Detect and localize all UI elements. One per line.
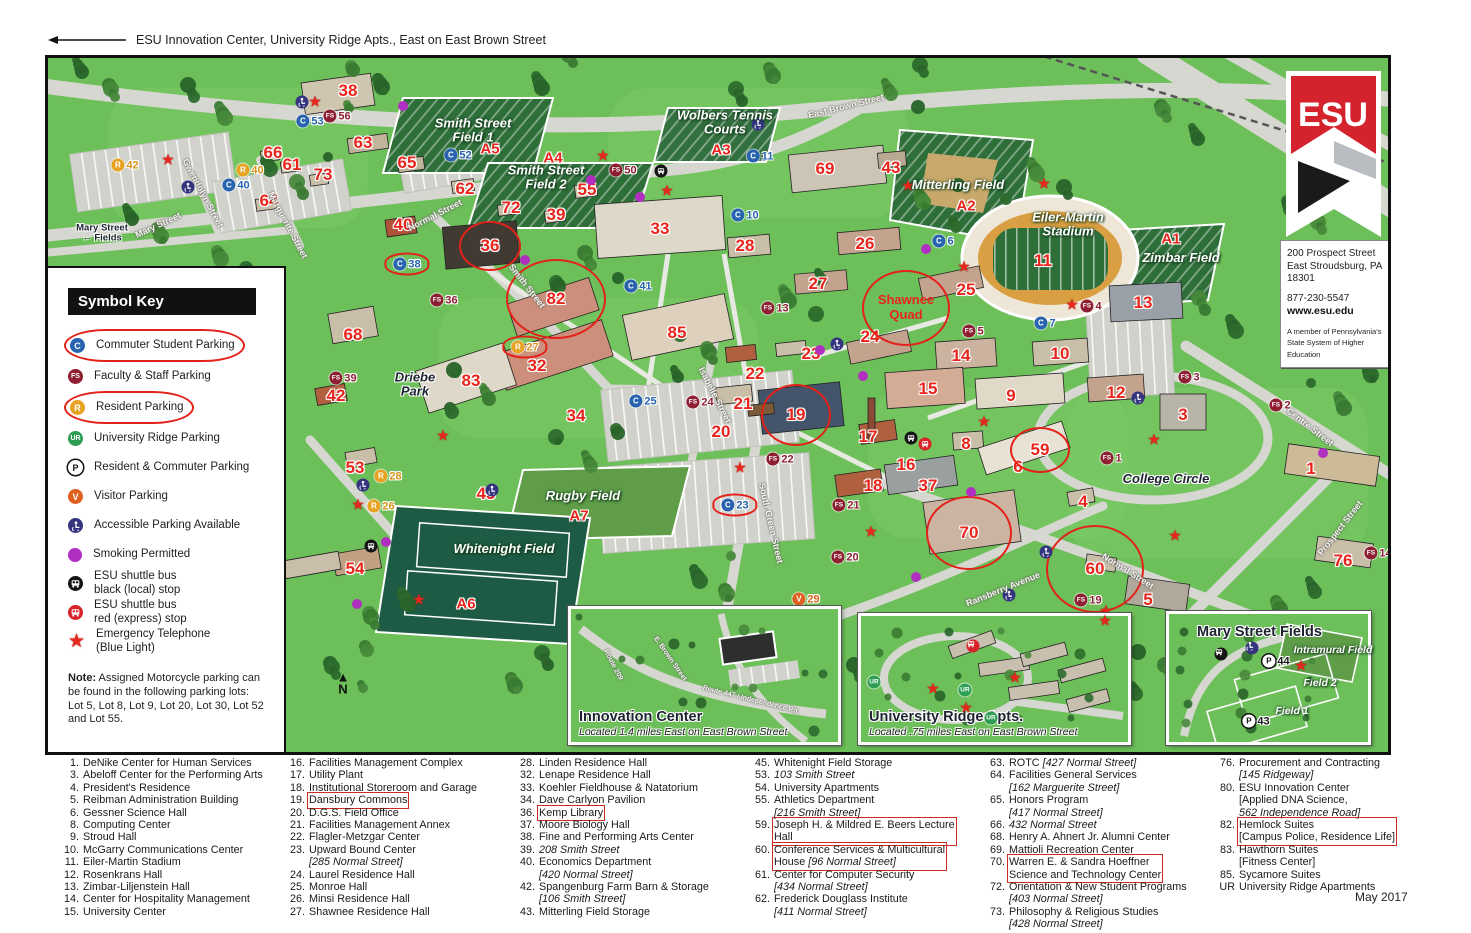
- directory-entry-text: Hawthorn Suites[Fitness Center]: [1239, 844, 1437, 869]
- directory-entry-59: 59.Joseph H. & Mildred E. Beers LectureH…: [746, 819, 972, 844]
- building-number-20: 20: [712, 422, 731, 442]
- directory-entry-text: Zimbar-Liljenstein Hall: [83, 881, 281, 893]
- directory-entry-text: DeNike Center for Human Services: [83, 757, 281, 769]
- shuttle-bus-black-icon: [1215, 648, 1228, 661]
- building-number-83: 83: [462, 371, 481, 391]
- directory-entry-43: 43.Mitterling Field Storage: [511, 906, 737, 918]
- area-label-college-circle: College Circle: [1123, 472, 1210, 486]
- directory-entry-line: 103 Smith Street: [774, 769, 972, 781]
- directory-column-1: 1.DeNike Center for Human Services3.Abel…: [55, 757, 281, 918]
- directory-entry-line: [Fitness Center]: [1239, 856, 1437, 868]
- directory-entry-number: UR: [1211, 881, 1235, 893]
- directory-entry-text: Conference Services & MulticulturalHouse…: [774, 844, 945, 869]
- emergency-telephone-icon: ★: [596, 149, 609, 164]
- directory-entry-line: Facilities General Services: [1009, 769, 1207, 781]
- directory-entry-number: 85.: [1211, 869, 1235, 881]
- parking-FS-icon: FS: [1100, 452, 1113, 465]
- field-code-A1: A1: [1161, 231, 1180, 248]
- directory-entry-number: 68.: [981, 831, 1005, 843]
- top-direction-note: ESU Innovation Center, University Ridge …: [48, 33, 546, 47]
- parking-R-icon: R: [367, 500, 380, 513]
- parking-C-icon: C: [222, 179, 235, 192]
- street-label-normal-street: Normal Street: [406, 197, 463, 233]
- field-label-zimbar-field: Zimbar Field: [1142, 251, 1219, 265]
- map-annotation-circle-59: 59: [1010, 427, 1070, 473]
- parking-P-icon: P: [1242, 715, 1255, 728]
- directory-entry-text: Rosenkrans Hall: [83, 869, 281, 881]
- key-row-accessible-parking-available: Accessible Parking Available: [64, 511, 248, 540]
- parking-FS-icon: FS: [1080, 300, 1093, 313]
- motorcycle-parking-note: Note: Assigned Motorcycle parking can be…: [68, 672, 266, 727]
- directory-entry-text: Mitterling Field Storage: [539, 906, 737, 918]
- directory-entry-19: 19.Dansbury Commons: [281, 794, 507, 806]
- parking-badge-R-27: R27: [502, 336, 547, 359]
- parking-UR-icon: UR: [868, 676, 881, 689]
- directory-entry-line: [285 Normal Street]: [309, 856, 507, 868]
- key-row-university-ridge-parking: URUniversity Ridge Parking: [64, 424, 228, 453]
- directory-entry-55: 55.Athletics Department[216 Smith Street…: [746, 794, 972, 819]
- parking-FS-icon: FS: [323, 110, 336, 123]
- directory-entry-45: 45.Whitenight Field Storage: [746, 757, 972, 769]
- building-number-59: 59: [1031, 440, 1050, 460]
- directory-entry-54: 54.University Apartments: [746, 782, 972, 794]
- parking-badge-FS-22: FS22: [766, 453, 793, 466]
- parking-C-icon: C: [721, 499, 734, 512]
- directory-entry-number: 26.: [281, 893, 305, 905]
- parking-badge-number: 38: [408, 258, 420, 270]
- parking-C-icon: C: [624, 280, 637, 293]
- parking-FS-icon: FS: [831, 551, 844, 564]
- accessible-parking-icon: [296, 96, 309, 109]
- parking-badge-number: 56: [338, 110, 350, 122]
- street-label-mary-street: Mary Street: [134, 210, 183, 240]
- directory-entry-21: 21.Facilities Management Annex: [281, 819, 507, 831]
- parking-badge-C-41: C41: [624, 280, 651, 293]
- building-number-9: 9: [1006, 386, 1015, 406]
- directory-entry-line: Facilities Management Complex: [309, 757, 507, 769]
- parking-badge-FS-50: FS50: [609, 164, 636, 177]
- building-number-66: 66: [264, 143, 283, 163]
- inset-university-ridge: University Ridge Apts.Located .75 miles …: [858, 613, 1131, 745]
- smoking-permitted-icon: [520, 255, 530, 265]
- key-row-resident-commuter-parking: PResident & Commuter Parking: [64, 453, 257, 482]
- directory-entry-line: Laurel Residence Hall: [309, 869, 507, 881]
- shawnee-quad-annotation: Shawnee Quad: [862, 270, 950, 346]
- directory-entry-number: 14.: [55, 893, 79, 905]
- parking-badge-R-42: R42: [111, 159, 138, 172]
- parking-badge-number: 39: [344, 372, 356, 384]
- building-number-19: 19: [787, 405, 806, 425]
- address-line: 200 Prospect Street: [1287, 248, 1385, 261]
- building-number-25: 25: [957, 280, 976, 300]
- directory-entry-number: 45.: [746, 757, 770, 769]
- parking-FS-icon: FS: [1178, 371, 1191, 384]
- parking-badge-number: 1: [1115, 452, 1121, 464]
- directory-entry-82: 82.Hemlock Suites[Campus Police, Residen…: [1211, 819, 1437, 844]
- accessible-parking-icon: [357, 479, 370, 492]
- building-number-54: 54: [346, 559, 365, 579]
- directory-entry-number: 72.: [981, 881, 1005, 906]
- parking-badge-FS-36: FS36: [430, 294, 457, 307]
- parking-badge-FS-19: FS19: [1074, 594, 1101, 607]
- parking-R-icon: R: [70, 400, 85, 415]
- directory-entry-70: 70.Warren E. & Sandra HoeffnerScience an…: [981, 856, 1207, 881]
- building-number-28: 28: [736, 236, 755, 256]
- parking-V-icon: V: [68, 489, 83, 504]
- directory-entry-text: Spangenburg Farm Barn & Storage[106 Smit…: [539, 881, 737, 906]
- directory-entry-line: Institutional Storeroom and Garage: [309, 782, 507, 794]
- emergency-telephone-icon: ★: [351, 498, 364, 513]
- directory-entry-number: 13.: [55, 881, 79, 893]
- parking-badge-number: 5: [977, 325, 983, 337]
- directory-entry-number: 25.: [281, 881, 305, 893]
- parking-badge-number: 27: [526, 341, 538, 353]
- directory-entry-line: Reibman Administration Building: [83, 794, 281, 806]
- directory-entry-line: Moore Biology Hall: [539, 819, 737, 831]
- directory-entry-line: D.G.S. Field Office: [309, 807, 507, 819]
- field-label-rugby-field: Rugby Field: [546, 489, 620, 503]
- directory-entry-line: [434 Normal Street]: [774, 881, 972, 893]
- directory-entry-number: 32.: [511, 769, 535, 781]
- directory-entry-number: 80.: [1211, 782, 1235, 819]
- directory-entry-line: [162 Marguerite Street]: [1009, 782, 1207, 794]
- directory-entry-line: Abeloff Center for the Performing Arts: [83, 769, 281, 781]
- directory-entry-4: 4.President's Residence: [55, 782, 281, 794]
- inset-subtitle-innovation: Located 1.4 miles East on East Brown Str…: [579, 726, 787, 738]
- directory-entry-line: Linden Residence Hall: [539, 757, 737, 769]
- building-number-72: 72: [502, 198, 521, 218]
- directory-entry-text: Frederick Douglass Institute[411 Normal …: [774, 893, 972, 918]
- shuttle-bus-black-icon: [365, 540, 378, 553]
- building-number-85: 85: [668, 323, 687, 343]
- directory-entry-line: Gessner Science Hall: [83, 807, 281, 819]
- directory-entry-text: Eiler-Martin Stadium: [83, 856, 281, 868]
- field-label-eiler-martin-stadium: Eiler-Martin Stadium: [1032, 211, 1104, 240]
- directory-entry-25: 25.Monroe Hall: [281, 881, 507, 893]
- directory-entry-text: Reibman Administration Building: [83, 794, 281, 806]
- key-row-commuter-student-parking: CCommuter Student Parking: [64, 329, 245, 362]
- emergency-telephone-icon: ★: [436, 429, 449, 444]
- directory-entry-23: 23.Upward Bound Center[285 Normal Street…: [281, 844, 507, 869]
- area-label-driebe-park: Driebe Park: [395, 371, 435, 400]
- key-row-esu-shuttle-bus: ESU shuttle bus black (local) stop: [64, 569, 188, 598]
- directory-entry-line: Mattioli Recreation Center: [1009, 844, 1207, 856]
- directory-entry-number: 19.: [281, 794, 305, 806]
- directory-entry-line: ESU Innovation Center: [1239, 782, 1437, 794]
- directory-entry-line: 562 Independence Road]: [1239, 807, 1437, 819]
- directory-entry-number: 39.: [511, 844, 535, 856]
- key-row-visitor-parking: VVisitor Parking: [64, 482, 176, 511]
- parking-badge-number: 43: [1257, 715, 1269, 727]
- directory-entry-62: 62.Frederick Douglass Institute[411 Norm…: [746, 893, 972, 918]
- directory-entry-36: 36.Kemp Library: [511, 807, 737, 819]
- key-row-label: Visitor Parking: [94, 490, 168, 503]
- directory-entry-text: Facilities General Services[162 Margueri…: [1009, 769, 1207, 794]
- parking-C-icon: C: [747, 150, 760, 163]
- inset-field-label-field-1: Field 1: [1275, 705, 1308, 717]
- directory-entry-line: Warren E. & Sandra Hoeffner: [1009, 856, 1161, 868]
- directory-entry-line: Koehler Fieldhouse & Natatorium: [539, 782, 737, 794]
- key-row-label: University Ridge Parking: [94, 432, 220, 445]
- parking-C-icon: C: [731, 209, 744, 222]
- parking-C-icon: C: [1034, 317, 1047, 330]
- directory-entry-line: [Applied DNA Science,: [1239, 794, 1437, 806]
- field-label-mitterling-field: Mitterling Field: [912, 178, 1004, 192]
- directory-entry-number: 8.: [55, 819, 79, 831]
- directory-entry-text: Stroud Hall: [83, 831, 281, 843]
- parking-badge-number: 14: [1379, 547, 1391, 559]
- directory-entry-number: 61.: [746, 869, 770, 894]
- directory-entry-line: Upward Bound Center: [309, 844, 507, 856]
- directory-entry-number: 55.: [746, 794, 770, 819]
- directory-entry-text: Utility Plant: [309, 769, 507, 781]
- parking-badge-number: 40: [251, 164, 263, 176]
- note-text: Assigned Motorcycle parking can be found…: [68, 672, 264, 725]
- directory-entry-number: 20.: [281, 807, 305, 819]
- emergency-telephone-icon: ★: [1065, 298, 1078, 313]
- directory-entry-number: 22.: [281, 831, 305, 843]
- directory-entry-text: Philosophy & Religious Studies[428 Norma…: [1009, 906, 1207, 931]
- parking-badge-FS-3: FS3: [1178, 371, 1199, 384]
- directory-entry-85: 85.Sycamore Suites: [1211, 869, 1437, 881]
- smoking-permitted-icon: [815, 345, 825, 355]
- directory-entry-number: 23.: [281, 844, 305, 869]
- directory-entry-line: Computing Center: [83, 819, 281, 831]
- directory-entry-11: 11.Eiler-Martin Stadium: [55, 856, 281, 868]
- directory-entry-number: 17.: [281, 769, 305, 781]
- directory-entry-number: 27.: [281, 906, 305, 918]
- directory-entry-24: 24.Laurel Residence Hall: [281, 869, 507, 881]
- parking-badge-number: 11: [762, 150, 774, 162]
- directory-entry-text: Koehler Fieldhouse & Natatorium: [539, 782, 737, 794]
- directory-entry-line: Hall: [774, 831, 955, 843]
- directory-column-2: 16.Facilities Management Complex17.Utili…: [281, 757, 507, 918]
- shuttle-bus-red-icon: [919, 438, 932, 451]
- directory-entry-line: Kemp Library: [539, 807, 603, 819]
- inset-field-label-intramural-field: Intramural Field: [1294, 644, 1373, 656]
- directory-entry-text: Monroe Hall: [309, 881, 507, 893]
- smoking-permitted-icon: [1318, 448, 1328, 458]
- map-date: May 2017: [1355, 890, 1408, 904]
- parking-FS-icon: FS: [962, 325, 975, 338]
- directory-entry-line: Hawthorn Suites: [1239, 844, 1437, 856]
- directory-entry-number: 37.: [511, 819, 535, 831]
- building-number-61: 61: [283, 155, 302, 175]
- directory-entry-line: ROTC [427 Normal Street]: [1009, 757, 1207, 769]
- building-number-68: 68: [344, 325, 363, 345]
- parking-badge-number: 3: [1193, 371, 1199, 383]
- smoking-permitted-icon: [921, 244, 931, 254]
- accessible-parking-icon: [1246, 642, 1259, 655]
- directory-entry-12: 12.Rosenkrans Hall: [55, 869, 281, 881]
- directory-entry-line: Joseph H. & Mildred E. Beers Lecture: [774, 819, 955, 831]
- parking-V-icon: V: [792, 593, 805, 606]
- directory-entry-number: 1.: [55, 757, 79, 769]
- key-row-label: Smoking Permitted: [93, 548, 190, 561]
- parking-badge-C-6: C6: [932, 235, 953, 248]
- accessible-parking-icon: [1132, 392, 1145, 405]
- inset-title-innovation: Innovation Center: [579, 709, 702, 725]
- directory-entry-33: 33.Koehler Fieldhouse & Natatorium: [511, 782, 737, 794]
- building-number-33: 33: [651, 219, 670, 239]
- building-number-32: 32: [528, 356, 547, 376]
- parking-badge-number: 23: [736, 499, 748, 511]
- directory-entry-line: Rosenkrans Hall: [83, 869, 281, 881]
- emergency-telephone-icon: ★: [1147, 433, 1160, 448]
- directory-entry-line: House [96 Normal Street]: [774, 856, 945, 868]
- directory-entry-number: 70.: [981, 856, 1005, 881]
- parking-R-icon: R: [236, 164, 249, 177]
- key-row-label: ESU shuttle bus black (local) stop: [94, 570, 180, 596]
- parking-badge-FS-39: FS39: [329, 372, 356, 385]
- directory-entry-text: Center for Hospitality Management: [83, 893, 281, 905]
- directory-entry-66: 66.432 Normal Street: [981, 819, 1207, 831]
- directory-entry-text: Linden Residence Hall: [539, 757, 737, 769]
- directory-entry-text: Orientation & New Student Programs[403 N…: [1009, 881, 1207, 906]
- building-number-16: 16: [897, 455, 916, 475]
- building-number-38: 38: [339, 81, 358, 101]
- smoking-permitted-icon: [635, 192, 645, 202]
- parking-UR-icon: UR: [68, 431, 83, 446]
- building-number-73: 73: [314, 165, 333, 185]
- street-label-ransberry-avenue: Ransberry Avenue: [965, 570, 1042, 609]
- building-number-76: 76: [1334, 551, 1353, 571]
- directory-entry-37: 37.Moore Biology Hall: [511, 819, 737, 831]
- field-code-A3: A3: [711, 142, 730, 159]
- directory-entry-number: 38.: [511, 831, 535, 843]
- parking-badge-number: 50: [624, 164, 636, 176]
- building-number-34: 34: [567, 406, 586, 426]
- building-number-17: 17: [859, 427, 878, 447]
- directory-entry-5: 5.Reibman Administration Building: [55, 794, 281, 806]
- directory-entry-text: Institutional Storeroom and Garage: [309, 782, 507, 794]
- key-row-label: Emergency Telephone (Blue Light): [96, 628, 210, 654]
- key-row-label: Resident Parking: [96, 401, 184, 414]
- directory-entry-text: Laurel Residence Hall: [309, 869, 507, 881]
- parking-badge-FS-56: FS56: [323, 110, 350, 123]
- directory-entry-line: [411 Normal Street]: [774, 906, 972, 918]
- parking-badge-number: 25: [644, 395, 656, 407]
- parking-FS-icon: FS: [1269, 399, 1282, 412]
- building-number-10: 10: [1051, 344, 1070, 364]
- field-label-smith-street-field-2: Smith Street Field 2: [508, 164, 585, 193]
- parking-UR-icon: UR: [959, 684, 972, 697]
- map-annotation-circle-19: 19: [761, 384, 831, 446]
- directory-column-3: 28.Linden Residence Hall32.Lenape Reside…: [511, 757, 737, 918]
- directory-entry-number: 18.: [281, 782, 305, 794]
- emergency-telephone-icon: ★: [977, 415, 990, 430]
- parking-UR-icon: UR: [985, 712, 998, 725]
- parking-badge-number: 52: [459, 149, 471, 161]
- directory-entry-line: Economics Department: [539, 856, 737, 868]
- directory-entry-text: Sycamore Suites: [1239, 869, 1437, 881]
- directory-entry-line: Frederick Douglass Institute: [774, 893, 972, 905]
- directory-entry-number: 4.: [55, 782, 79, 794]
- directory-entry-number: 40.: [511, 856, 535, 881]
- directory-entry-text: 208 Smith Street: [539, 844, 737, 856]
- parking-FS-icon: FS: [1364, 547, 1377, 560]
- directory-entry-32: 32.Lenape Residence Hall: [511, 769, 737, 781]
- directory-entry-60: 60.Conference Services & MulticulturalHo…: [746, 844, 972, 869]
- inset-mary-street-fields: Mary Street FieldsIntramural FieldField …: [1166, 611, 1371, 745]
- directory-entry-number: 64.: [981, 769, 1005, 794]
- left-arrow-icon: [48, 34, 128, 46]
- emergency-telephone-icon: ★: [959, 701, 972, 716]
- directory-entry-line: DeNike Center for Human Services: [83, 757, 281, 769]
- key-row-faculty-staff-parking: FSFaculty & Staff Parking: [64, 362, 219, 391]
- directory-entry-text: Shawnee Residence Hall: [309, 906, 507, 918]
- esu-logo-icon: ESU: [1286, 71, 1381, 243]
- directory-entry-38: 38.Fine and Performing Arts Center: [511, 831, 737, 843]
- parking-C-icon: C: [393, 258, 406, 271]
- directory-entry-number: 34.: [511, 794, 535, 806]
- smoking-permitted-icon: [381, 537, 391, 547]
- directory-entry-text: Athletics Department[216 Smith Street]: [774, 794, 972, 819]
- street-label-south-green-street: South Green Street: [757, 482, 785, 564]
- parking-C-icon: C: [70, 338, 85, 353]
- directory-entry-34: 34.Dave Carlyon Pavilion: [511, 794, 737, 806]
- directory-entry-61: 61.Center for Computer Security[434 Norm…: [746, 869, 972, 894]
- building-number-22: 22: [746, 364, 765, 384]
- directory-entry-number: 53.: [746, 769, 770, 781]
- building-number-82: 82: [547, 289, 566, 309]
- key-row-esu-shuttle-bus: ESU shuttle bus red (express) stop: [64, 598, 195, 627]
- parking-badge-V-29: V29: [792, 593, 819, 606]
- directory-entry-line: Procurement and Contracting: [1239, 757, 1437, 769]
- directory-entry-line: Stroud Hall: [83, 831, 281, 843]
- directory-entry-number: 10.: [55, 844, 79, 856]
- directory-entry-line: 208 Smith Street: [539, 844, 737, 856]
- directory-entry-number: 42.: [511, 881, 535, 906]
- directory-entry-9: 9.Stroud Hall: [55, 831, 281, 843]
- parking-badge-number: 7: [1049, 317, 1055, 329]
- directory-entry-line: Dansbury Commons: [309, 794, 407, 806]
- directory-entry-number: 76.: [1211, 757, 1235, 782]
- emergency-telephone-icon: ★: [1168, 529, 1181, 544]
- directory-entry-text: 103 Smith Street: [774, 769, 972, 781]
- parking-badge-number: 10: [746, 209, 758, 221]
- street-label-marguerite-street: Marguerite Street: [266, 190, 310, 260]
- parking-R-icon: R: [511, 341, 524, 354]
- directory-entry-text: Dave Carlyon Pavilion: [539, 794, 737, 806]
- directory-entry-line: [417 Normal Street]: [1009, 807, 1207, 819]
- directory-entry-text: 432 Normal Street: [1009, 819, 1207, 831]
- esu-logo: ESU: [1286, 71, 1381, 243]
- directory-entry-text: ROTC [427 Normal Street]: [1009, 757, 1207, 769]
- directory-entry-text: ESU Innovation Center[Applied DNA Scienc…: [1239, 782, 1437, 819]
- building-number-12: 12: [1107, 383, 1126, 403]
- building-number-36: 36: [481, 236, 500, 256]
- directory-entry-number: 6.: [55, 807, 79, 819]
- emergency-telephone-icon: ★: [864, 525, 877, 540]
- parking-FS-icon: FS: [832, 499, 845, 512]
- parking-FS-icon: FS: [329, 372, 342, 385]
- parking-C-icon: C: [296, 115, 309, 128]
- parking-badge-R-28: R28: [374, 470, 401, 483]
- directory-entry-text: Henry A. Ahnert Jr. Alumni Center: [1009, 831, 1207, 843]
- parking-badge-C-40: C40: [222, 179, 249, 192]
- directory-entry-17: 17.Utility Plant: [281, 769, 507, 781]
- directory-entry-20: 20.D.G.S. Field Office: [281, 807, 507, 819]
- parking-badge-C-7: C7: [1034, 317, 1055, 330]
- directory-entry-number: 15.: [55, 906, 79, 918]
- key-row-label: Faculty & Staff Parking: [94, 370, 211, 383]
- directory-entry-line: University Center: [83, 906, 281, 918]
- directory-entry-68: 68.Henry A. Ahnert Jr. Alumni Center: [981, 831, 1207, 843]
- directory-entry-number: 36.: [511, 807, 535, 819]
- directory-entry-line: Zimbar-Liljenstein Hall: [83, 881, 281, 893]
- building-number-39: 39: [547, 205, 566, 225]
